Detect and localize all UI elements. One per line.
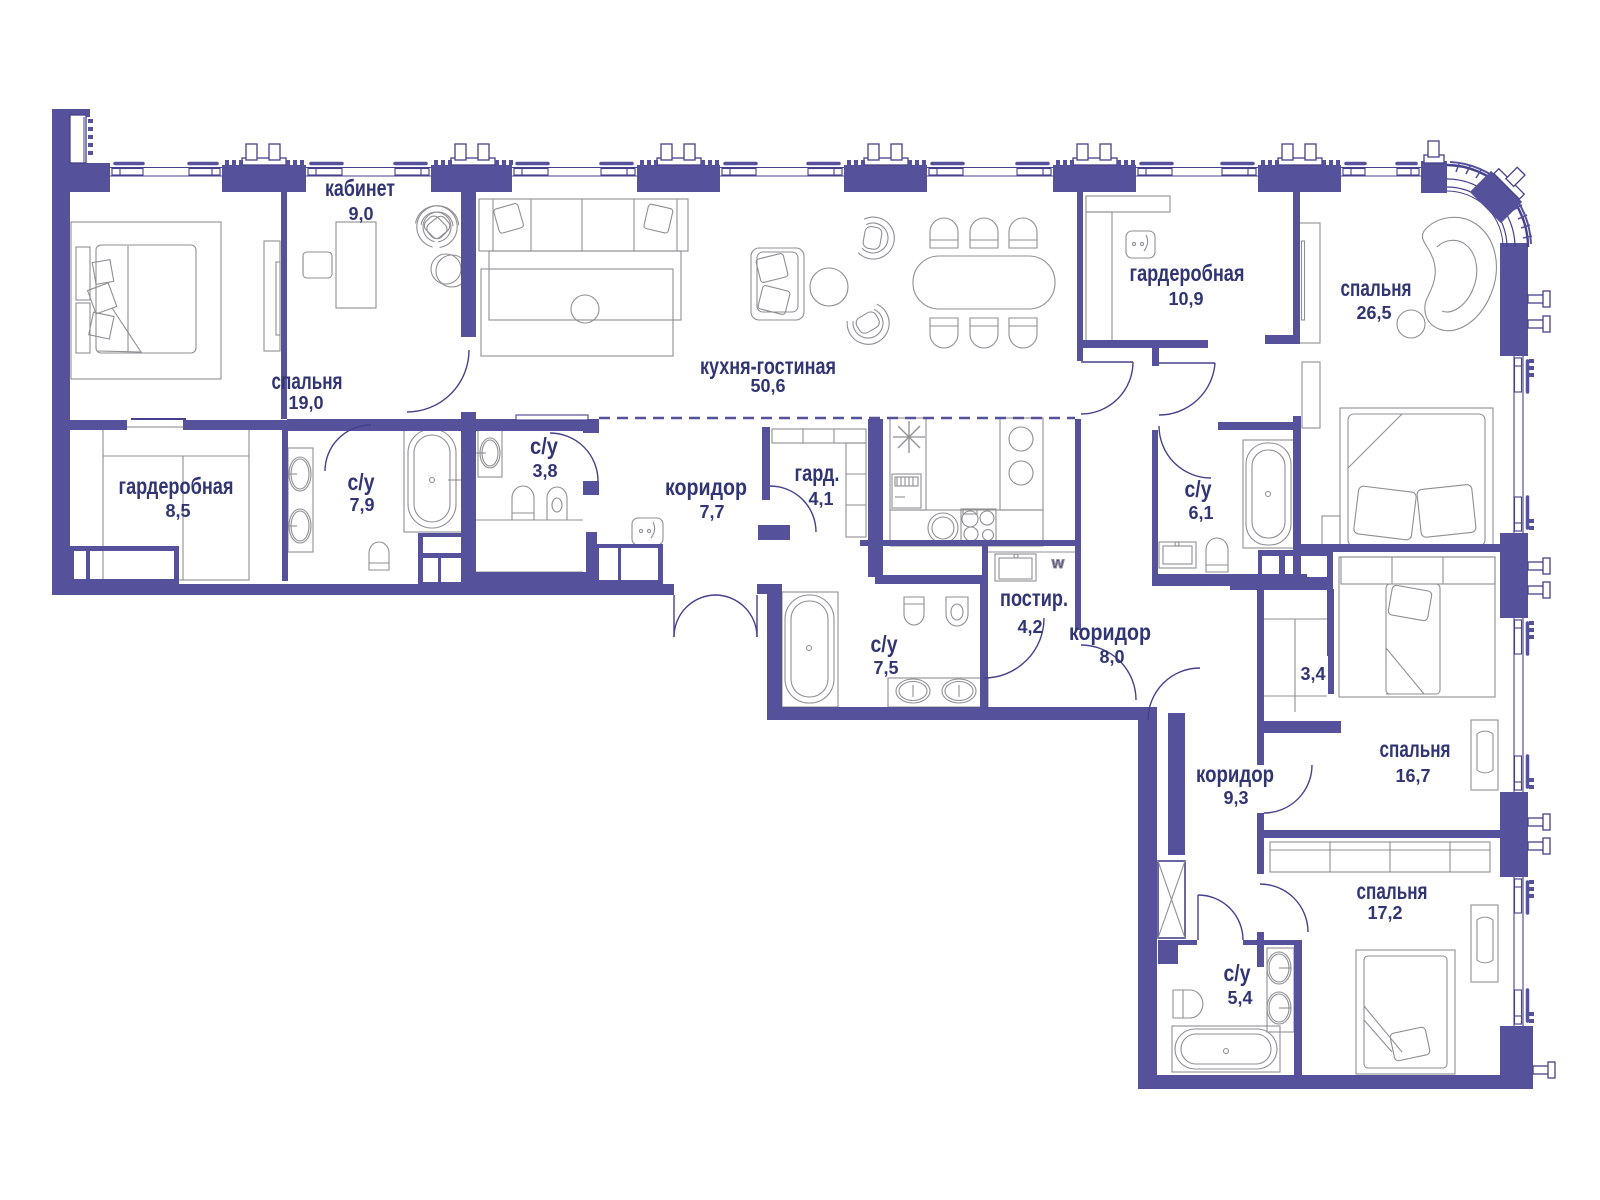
svg-text:8,5: 8,5 [165, 501, 190, 521]
svg-text:гард.: гард. [795, 460, 840, 486]
svg-text:7,9: 7,9 [349, 495, 374, 515]
svg-text:3,4: 3,4 [1300, 664, 1325, 684]
svg-text:4,1: 4,1 [808, 489, 833, 509]
svg-text:19,0: 19,0 [288, 393, 323, 413]
svg-text:спальня: спальня [1380, 736, 1451, 762]
svg-text:9,3: 9,3 [1223, 788, 1248, 808]
svg-text:8,0: 8,0 [1099, 647, 1124, 667]
svg-text:4,2: 4,2 [1017, 617, 1042, 637]
svg-text:50,6: 50,6 [750, 376, 785, 396]
svg-text:7,7: 7,7 [699, 502, 724, 522]
svg-text:с/у: с/у [530, 433, 558, 459]
svg-text:10,9: 10,9 [1168, 289, 1203, 309]
svg-text:с/у: с/у [1185, 476, 1212, 502]
svg-text:кабинет: кабинет [325, 175, 395, 201]
svg-text:гардеробная: гардеробная [119, 473, 234, 499]
svg-text:6,1: 6,1 [1188, 503, 1213, 523]
svg-text:7,5: 7,5 [873, 658, 898, 678]
svg-text:16,7: 16,7 [1395, 766, 1430, 786]
svg-text:с/у: с/у [348, 469, 375, 495]
svg-text:спальня: спальня [1357, 878, 1428, 904]
svg-text:w: w [1051, 555, 1065, 572]
svg-text:3,8: 3,8 [532, 461, 557, 481]
svg-text:17,2: 17,2 [1367, 903, 1402, 923]
svg-text:коридор: коридор [665, 474, 747, 500]
svg-text:коридор: коридор [1196, 761, 1274, 787]
svg-text:спальня: спальня [272, 368, 343, 394]
svg-text:с/у: с/у [1224, 960, 1251, 986]
svg-text:26,5: 26,5 [1356, 303, 1391, 323]
svg-text:спальня: спальня [1341, 275, 1412, 301]
svg-text:с/у: с/у [871, 631, 898, 657]
svg-text:5,4: 5,4 [1227, 988, 1252, 1008]
svg-text:коридор: коридор [1069, 619, 1151, 645]
svg-text:постир.: постир. [1000, 585, 1068, 611]
svg-text:гардеробная: гардеробная [1130, 260, 1245, 286]
svg-text:9,0: 9,0 [348, 204, 373, 224]
